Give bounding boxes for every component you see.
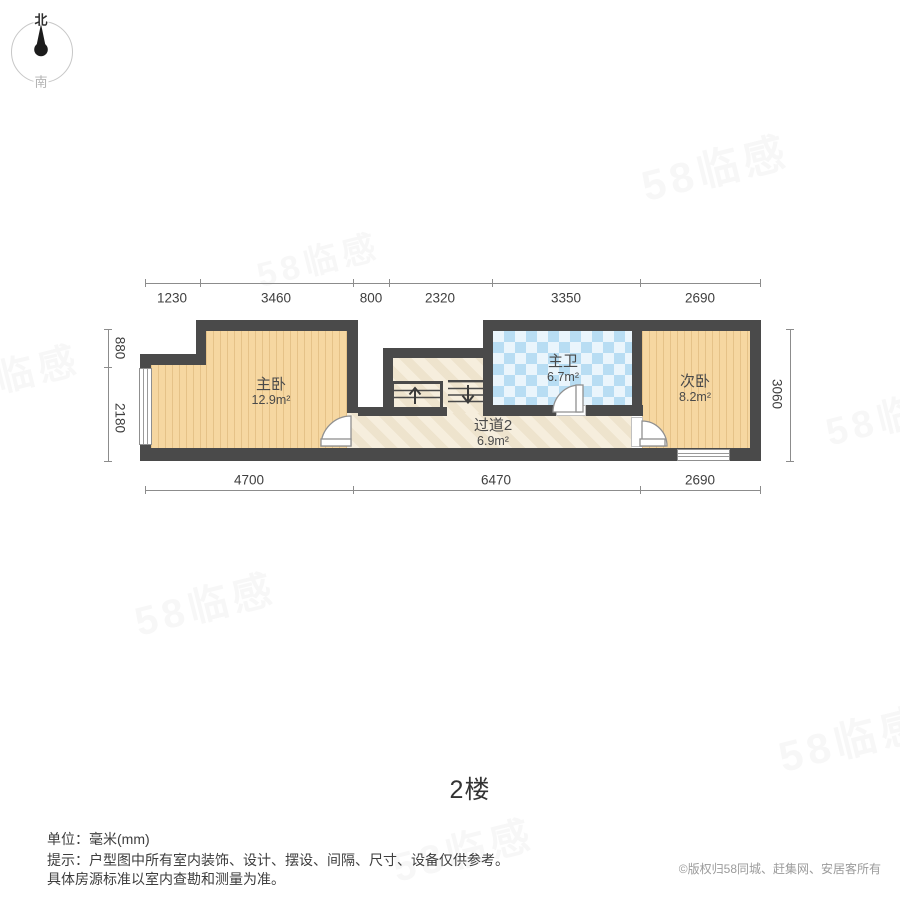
room-label-second-bedroom: 次卧 8.2m² [679,373,711,405]
room-name: 次卧 [679,373,711,390]
copyright: ©版权归58同城、赶集网、安居客所有 [679,860,881,877]
door-sill [631,417,643,447]
wall [750,320,761,461]
dim-tick [104,329,112,330]
wall [383,348,493,358]
dim-tick [760,279,761,287]
watermark: 58临感 [635,118,796,214]
floor-title: 2楼 [450,770,491,806]
wall [347,320,358,413]
compass-north-label: 北 [33,10,48,29]
room-master-bedroom-floor [151,365,206,448]
footer-unit-line: 单位：毫米(mm) [47,829,150,849]
dim-label: 6470 [481,473,511,488]
dim-label: 880 [113,337,128,360]
dim-tick [145,279,146,287]
room-area: 6.7m² [547,370,579,384]
dim-tick [200,279,201,287]
watermark: 58临感 [819,370,900,457]
dim-tick [786,329,794,330]
dim-tick [640,279,641,287]
dim-tick [104,461,112,462]
room-label-corridor: 过道2 6.9m² [474,417,512,449]
dim-label: 3350 [551,291,581,306]
dim-label: 2690 [685,473,715,488]
door-sill [556,405,586,416]
room-area: 8.2m² [679,390,711,404]
dim-tick [786,461,794,462]
wall [483,331,493,416]
dim-label: 2320 [425,291,455,306]
dim-tick [104,367,112,368]
watermark: 58临感 [251,219,385,297]
room-label-master-bathroom: 主卫 6.7m² [547,353,579,385]
dim-label: 4700 [234,473,264,488]
dim-label: 800 [360,291,383,306]
room-area: 6.9m² [474,434,512,448]
wall [196,320,358,331]
dim-tick [760,486,761,494]
floor-plan-page: 58临感 58临感 58临感 58临感 58临感 58临感 58临感 北 南 [0,0,900,900]
dim-line-left [108,329,109,462]
footer-note-line2: 具体房源标准以室内查勘和测量为准。 [47,869,285,889]
dim-line-top [145,283,760,284]
dim-line-bottom [145,490,760,491]
room-area: 12.9m² [252,393,291,407]
watermark: 58临感 [386,802,540,893]
wall [483,320,761,331]
dim-label: 2690 [685,291,715,306]
compass-south-label: 南 [33,72,48,91]
footer-note-line1: 提示：户型图中所有室内装饰、设计、摆设、间隔、尺寸、设备仅供参考。 [47,850,509,870]
stairs-up-box [391,381,443,410]
room-name: 主卧 [252,376,291,393]
dim-label: 1230 [157,291,187,306]
dim-tick [145,486,146,494]
dim-line-right [790,329,791,462]
dim-tick [353,279,354,287]
dim-label: 2180 [113,403,128,433]
room-label-master-bedroom: 主卧 12.9m² [252,376,291,408]
wall [632,331,642,416]
watermark: 58临感 [0,329,86,416]
dim-tick [492,279,493,287]
dim-tick [353,486,354,494]
room-name: 主卫 [547,353,579,370]
dim-label: 3060 [770,379,785,409]
room-name: 过道2 [474,417,512,434]
window [139,368,152,445]
dim-tick [389,279,390,287]
watermark: 58临感 [128,556,282,647]
dim-tick [640,486,641,494]
wall [140,448,761,461]
dim-label: 3460 [261,291,291,306]
watermark: 58临感 [772,689,900,785]
window [677,449,730,461]
